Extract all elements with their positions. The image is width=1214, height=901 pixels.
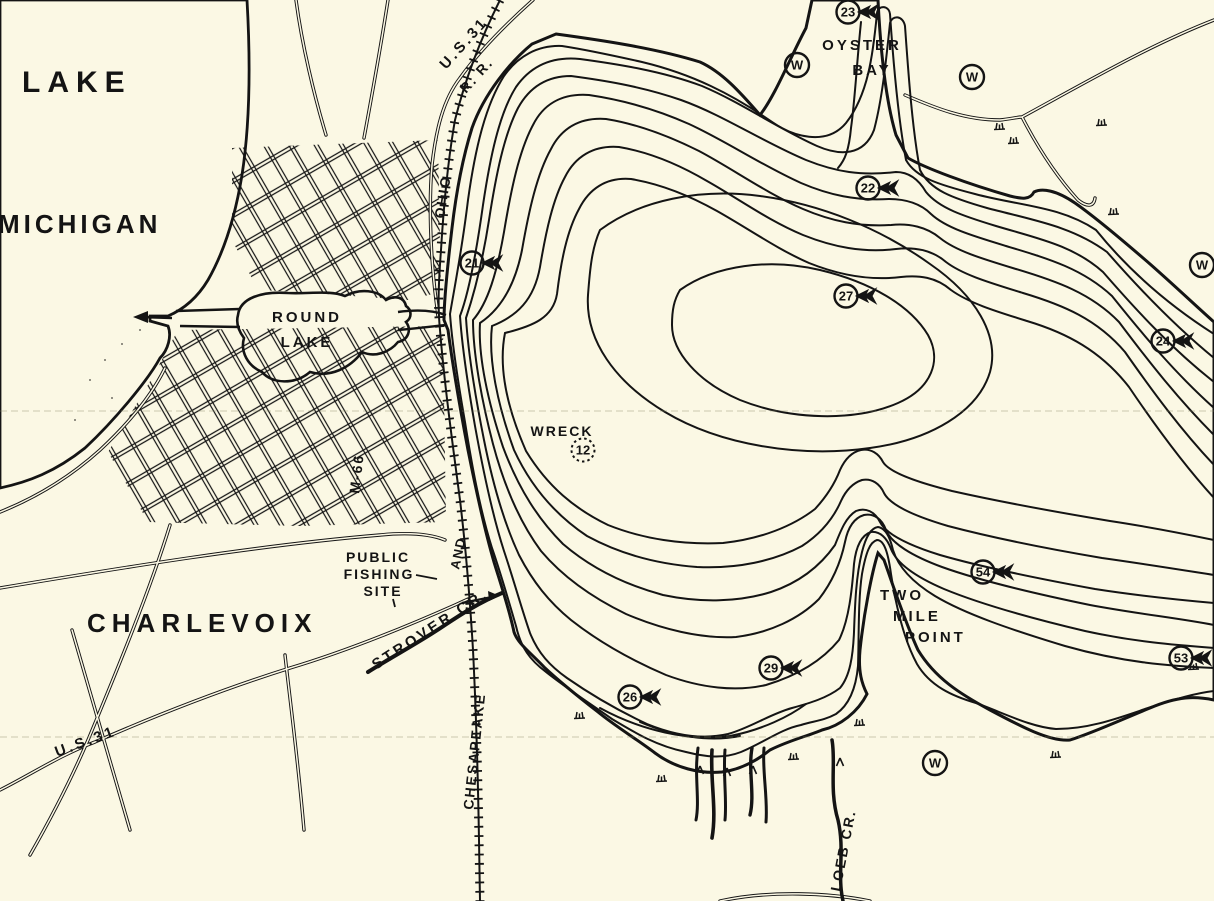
label-oyster-bay-1: OYSTER [822, 37, 902, 54]
svg-text:27: 27 [839, 289, 853, 304]
svg-text:53: 53 [1174, 651, 1188, 666]
map-canvas: LAKE MICHIGAN ROUND LAKE CHARLEVOIX OYST… [0, 0, 1214, 901]
svg-text:24: 24 [1156, 334, 1171, 349]
vintage-lake-chart: LAKE MICHIGAN ROUND LAKE CHARLEVOIX OYST… [0, 0, 1214, 901]
label-fishing-2: FISHING [344, 566, 415, 582]
svg-text:21: 21 [465, 256, 479, 271]
label-two-mile-2: MILE [893, 608, 941, 625]
label-charlevoix: CHARLEVOIX [87, 608, 317, 638]
label-fishing-1: PUBLIC [346, 549, 410, 565]
label-wreck: WRECK [531, 423, 594, 439]
svg-text:54: 54 [976, 565, 991, 580]
svg-text:29: 29 [764, 661, 778, 676]
svg-text:W: W [1196, 258, 1209, 273]
label-two-mile-3: POINT [905, 629, 966, 646]
svg-text:23: 23 [841, 5, 855, 20]
label-two-mile-1: TWO [880, 587, 924, 604]
svg-text:W: W [929, 756, 942, 771]
label-oyster-bay-2: BAY [852, 62, 891, 79]
label-lake-michigan-2: MICHIGAN [0, 209, 161, 239]
svg-text:22: 22 [861, 181, 875, 196]
svg-text:W: W [966, 70, 979, 85]
svg-text:W: W [791, 58, 804, 73]
wreck-depth-value: 12 [576, 443, 590, 458]
label-round-lake-2: LAKE [281, 334, 334, 351]
label-lake-michigan-1: LAKE [22, 66, 132, 99]
svg-text:26: 26 [623, 690, 637, 705]
label-fishing-3: SITE [363, 583, 402, 599]
label-round-lake-1: ROUND [272, 309, 342, 326]
